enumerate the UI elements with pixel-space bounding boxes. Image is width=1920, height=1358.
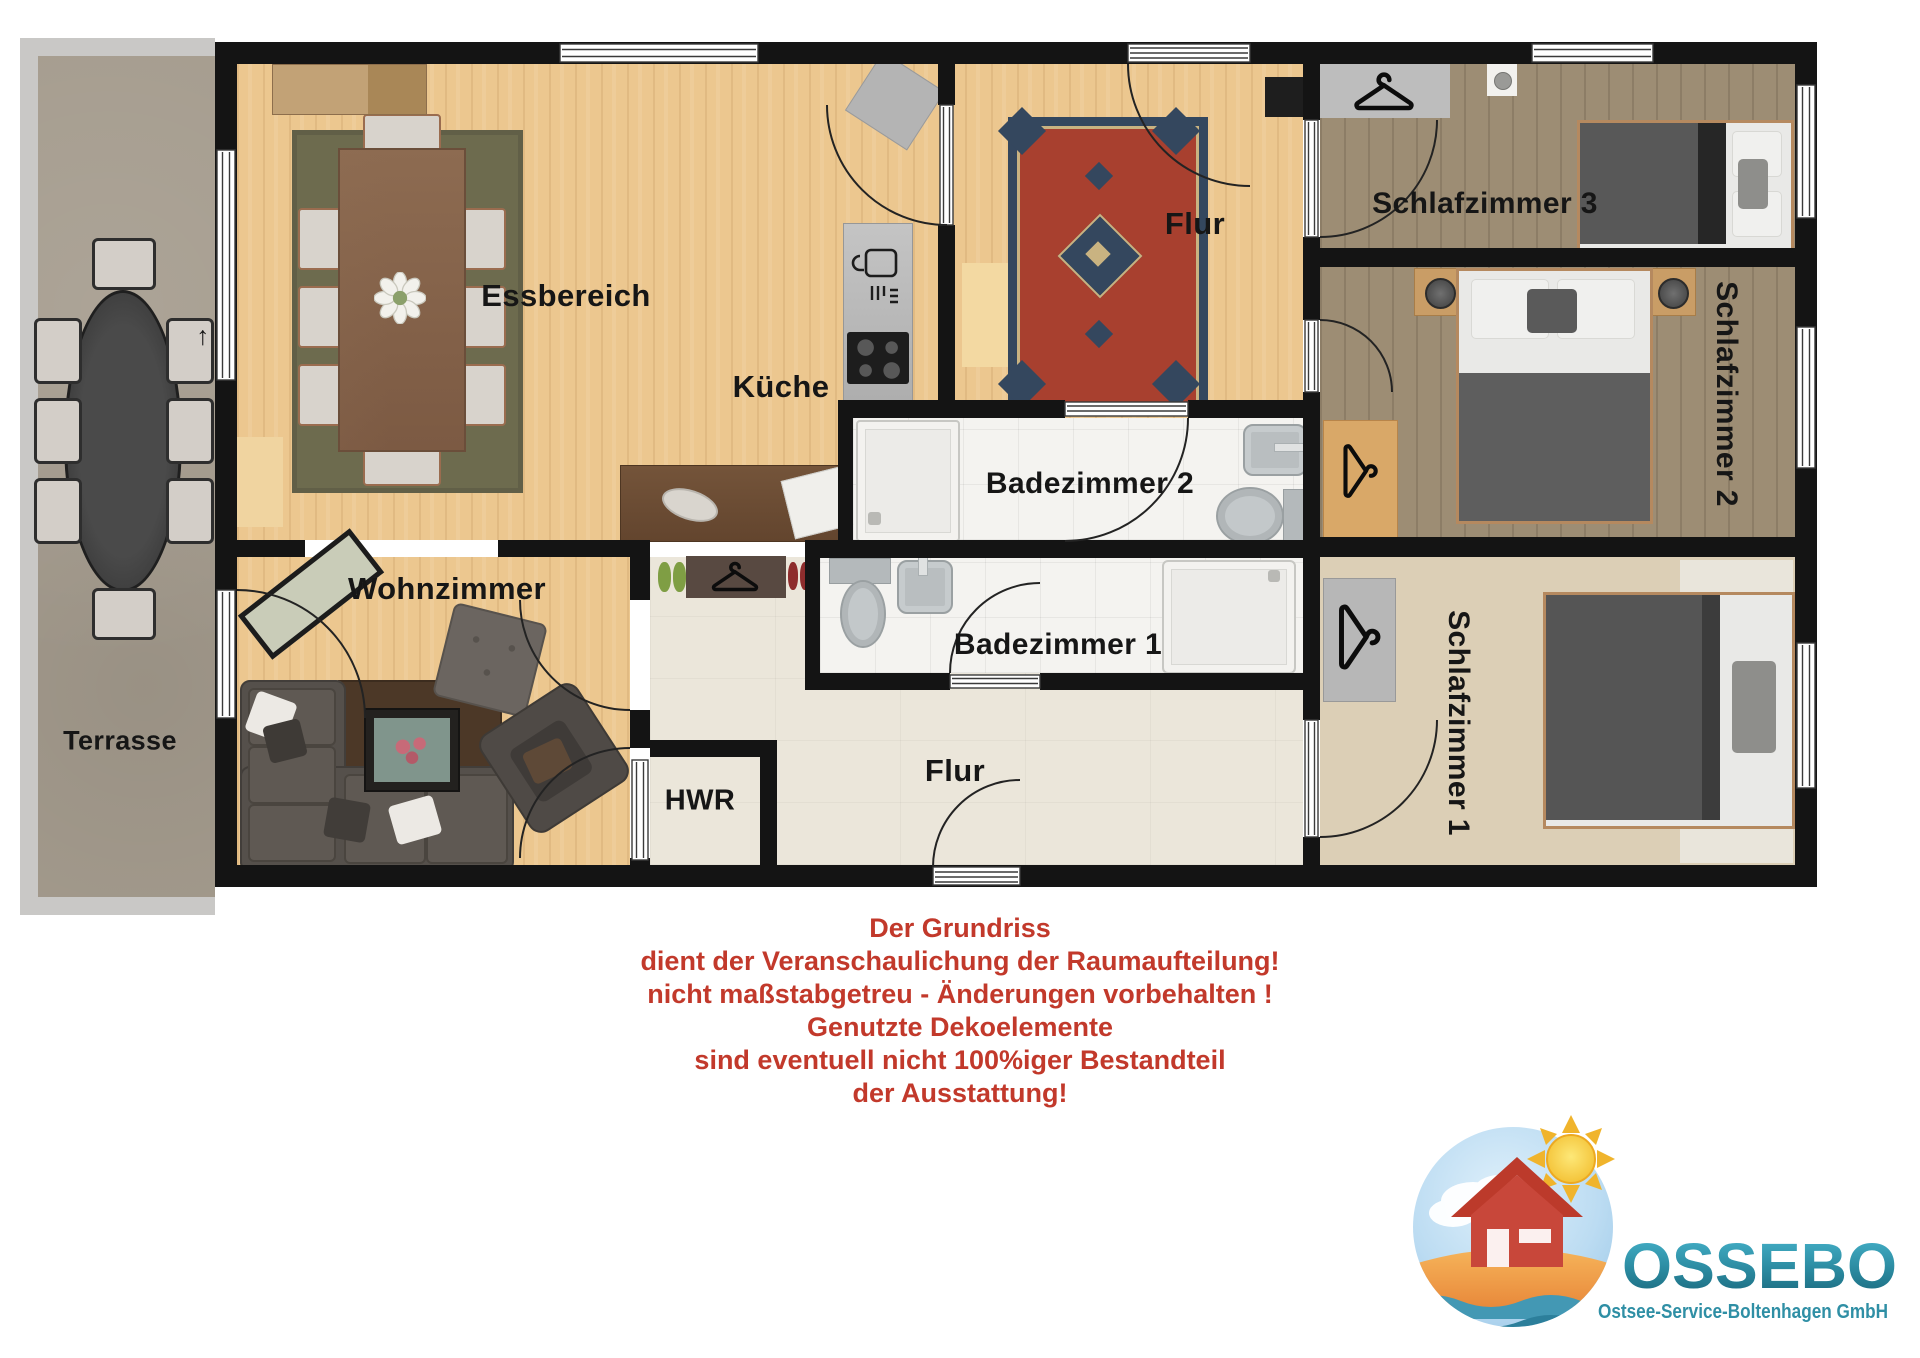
room-label-schlafzimmer1: Schlafzimmer 1 bbox=[1441, 610, 1475, 836]
floorplan-page: Terrasse Essbereich Küche Flur Schlafzim… bbox=[0, 0, 1920, 1358]
disclaimer-line: dient der Veranschaulichung der Raumauft… bbox=[0, 945, 1920, 978]
disclaimer-text: Der Grundriss dient der Veranschaulichun… bbox=[0, 912, 1920, 1110]
window bbox=[1797, 327, 1815, 468]
logo-subtitle-text: Ostsee-Service-Boltenhagen GmbH bbox=[1598, 1300, 1888, 1323]
door-frame bbox=[632, 760, 648, 860]
window bbox=[1532, 44, 1653, 62]
room-label-schlafzimmer2: Schlafzimmer 2 bbox=[1709, 281, 1743, 507]
door-arc bbox=[520, 600, 630, 710]
door-arcs bbox=[237, 64, 1437, 867]
company-logo: OSSEBO Ostsee-Service-Boltenhagen GmbH bbox=[1395, 1095, 1920, 1358]
room-label-essbereich: Essbereich bbox=[481, 278, 650, 314]
door-frame bbox=[933, 867, 1020, 885]
disclaimer-line: Der Grundriss bbox=[0, 912, 1920, 945]
logo-brand-text: OSSEBO bbox=[1622, 1230, 1897, 1302]
room-label-schlafzimmer3: Schlafzimmer 3 bbox=[1372, 187, 1598, 221]
north-arrow-icon: ↑ bbox=[196, 321, 209, 352]
door-frame bbox=[1128, 44, 1250, 62]
disclaimer-line: Genutzte Dekoelemente bbox=[0, 1011, 1920, 1044]
room-label-flur-unten: Flur bbox=[925, 753, 985, 789]
walls bbox=[215, 42, 1817, 887]
disclaimer-line: sind eventuell nicht 100%iger Bestandtei… bbox=[0, 1044, 1920, 1077]
door-frame bbox=[950, 675, 1040, 688]
window bbox=[1797, 85, 1815, 218]
room-label-hwr: HWR bbox=[665, 785, 735, 818]
disclaimer-line: nicht maßstabgetreu - Änderungen vorbeha… bbox=[0, 978, 1920, 1011]
window bbox=[560, 44, 758, 62]
room-label-kueche: Küche bbox=[733, 369, 830, 405]
door-arc bbox=[1128, 64, 1250, 186]
room-label-wohnzimmer: Wohnzimmer bbox=[348, 571, 546, 607]
door-arc bbox=[237, 590, 365, 718]
door-arc bbox=[520, 748, 630, 858]
windows-and-door-frames bbox=[217, 44, 1815, 885]
door-arc bbox=[1320, 320, 1392, 392]
room-label-flur-oben: Flur bbox=[1165, 206, 1225, 242]
wave-icon bbox=[1401, 1337, 1641, 1358]
door-arc bbox=[1320, 720, 1437, 837]
room-label-terrasse: Terrasse bbox=[63, 726, 177, 757]
window bbox=[1797, 643, 1815, 788]
window bbox=[217, 150, 235, 380]
room-label-badezimmer1: Badezimmer 1 bbox=[954, 628, 1162, 662]
door-frame bbox=[1065, 402, 1188, 416]
door-arc bbox=[933, 780, 1020, 867]
door-frame bbox=[217, 590, 235, 718]
door-frame bbox=[1305, 320, 1318, 392]
door-frame bbox=[940, 105, 953, 225]
door-frame bbox=[1305, 120, 1318, 237]
room-label-badezimmer2: Badezimmer 2 bbox=[986, 467, 1194, 501]
door-frame bbox=[1305, 720, 1318, 837]
door-arc bbox=[827, 105, 947, 225]
